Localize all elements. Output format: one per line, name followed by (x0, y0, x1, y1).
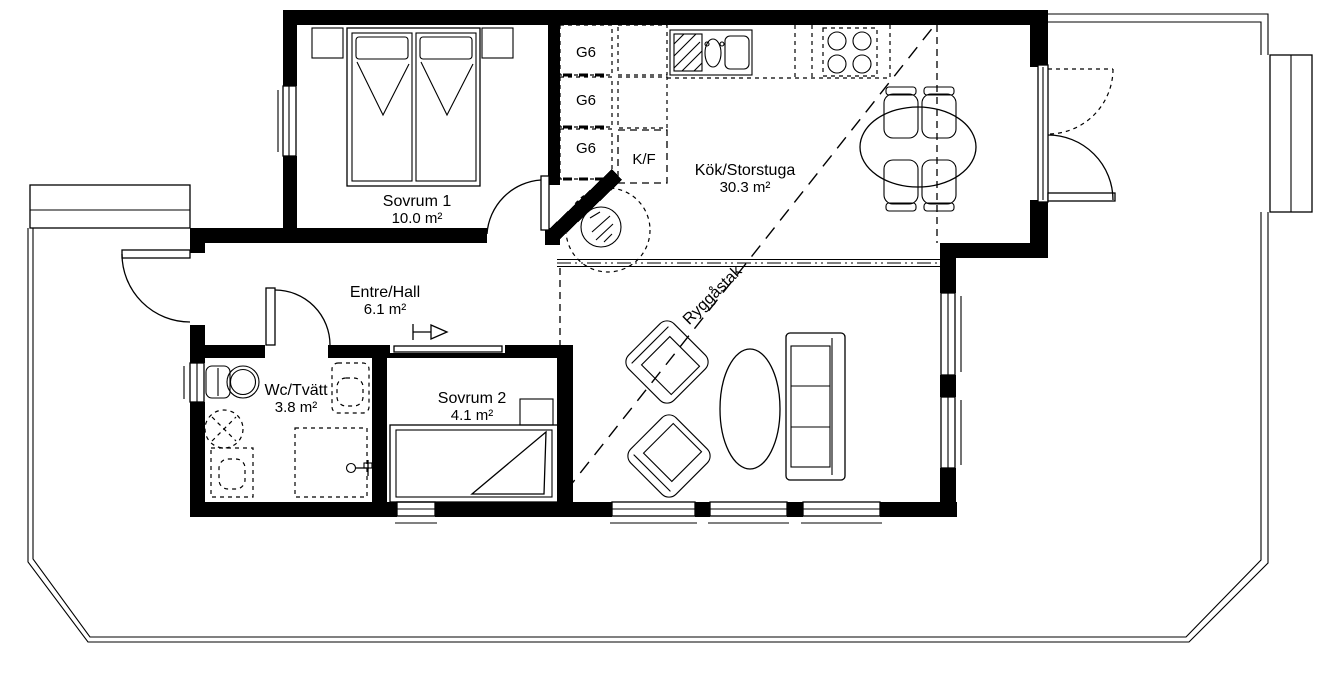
room-label-entre-hall: Entre/Hall (350, 284, 420, 301)
bedside-table-left (312, 28, 343, 58)
water-heater (211, 448, 253, 497)
sliding-door-sovrum2 (390, 324, 505, 353)
room-area-kok-storstuga: 30.3 m² (720, 179, 771, 196)
wall-tap (347, 460, 373, 476)
dining-chairs (884, 87, 956, 211)
toilet (206, 366, 259, 398)
living-room (622, 317, 845, 502)
sliding-direction-arrow (413, 324, 447, 340)
room-area-sovrum2: 4.1 m² (451, 407, 494, 424)
ridge-line (566, 26, 934, 491)
room-label-sovrum2: Sovrum 2 (438, 390, 507, 407)
beam-and-ceiling-lines (557, 25, 940, 491)
floor-drain (205, 410, 243, 448)
single-bed (390, 425, 558, 502)
room-label-kok-storstuga: Kök/Storstuga (695, 162, 796, 179)
stove (823, 28, 877, 76)
room-area-wc-tvatt: 3.8 m² (275, 399, 318, 416)
room-label-wc-tvatt: Wc/Tvätt (264, 382, 328, 399)
bedside-table (520, 399, 553, 425)
interior-walls (205, 10, 622, 502)
wardrobe-label-1: G6 (576, 44, 596, 61)
double-bed (347, 28, 480, 186)
window-sovrum2-south (395, 502, 437, 523)
fridge-freezer-label: K/F (632, 151, 655, 168)
bedside-table-right (482, 28, 513, 58)
wardrobe-label-2: G6 (576, 92, 596, 109)
windows-livingroom-south (610, 502, 882, 523)
kitchen-counter (667, 25, 890, 78)
deck-outline (28, 14, 1312, 642)
window-sovrum1-west (278, 86, 296, 156)
east-step (1270, 55, 1312, 212)
window-wc-west (184, 363, 204, 402)
room-label-sovrum1: Sovrum 1 (383, 193, 452, 210)
sovrum1-door (487, 176, 549, 234)
bedroom1 (312, 28, 513, 186)
room-area-entre-hall: 6.1 m² (364, 301, 407, 318)
armchair-1 (622, 317, 713, 408)
washing-machine (332, 363, 369, 413)
ridge-label: Ryggåstak (679, 261, 746, 328)
entrance-door (122, 250, 190, 322)
french-doors-east (1038, 65, 1115, 202)
sofa (786, 333, 845, 480)
floor-plan-page: Sovrum 1 10.0 m² Entre/Hall 6.1 m² Wc/Tv… (0, 0, 1328, 679)
floor-plan-drawing: Sovrum 1 10.0 m² Entre/Hall 6.1 m² Wc/Tv… (0, 0, 1328, 679)
utility-zone (295, 428, 367, 497)
wc-door (266, 288, 330, 345)
entrance-step (30, 185, 190, 228)
coffee-table (720, 349, 780, 469)
room-area-sovrum1: 10.0 m² (392, 210, 443, 227)
wardrobe-label-3: G6 (576, 140, 596, 157)
armchair-2 (624, 411, 715, 502)
kitchen-sink (670, 30, 752, 75)
